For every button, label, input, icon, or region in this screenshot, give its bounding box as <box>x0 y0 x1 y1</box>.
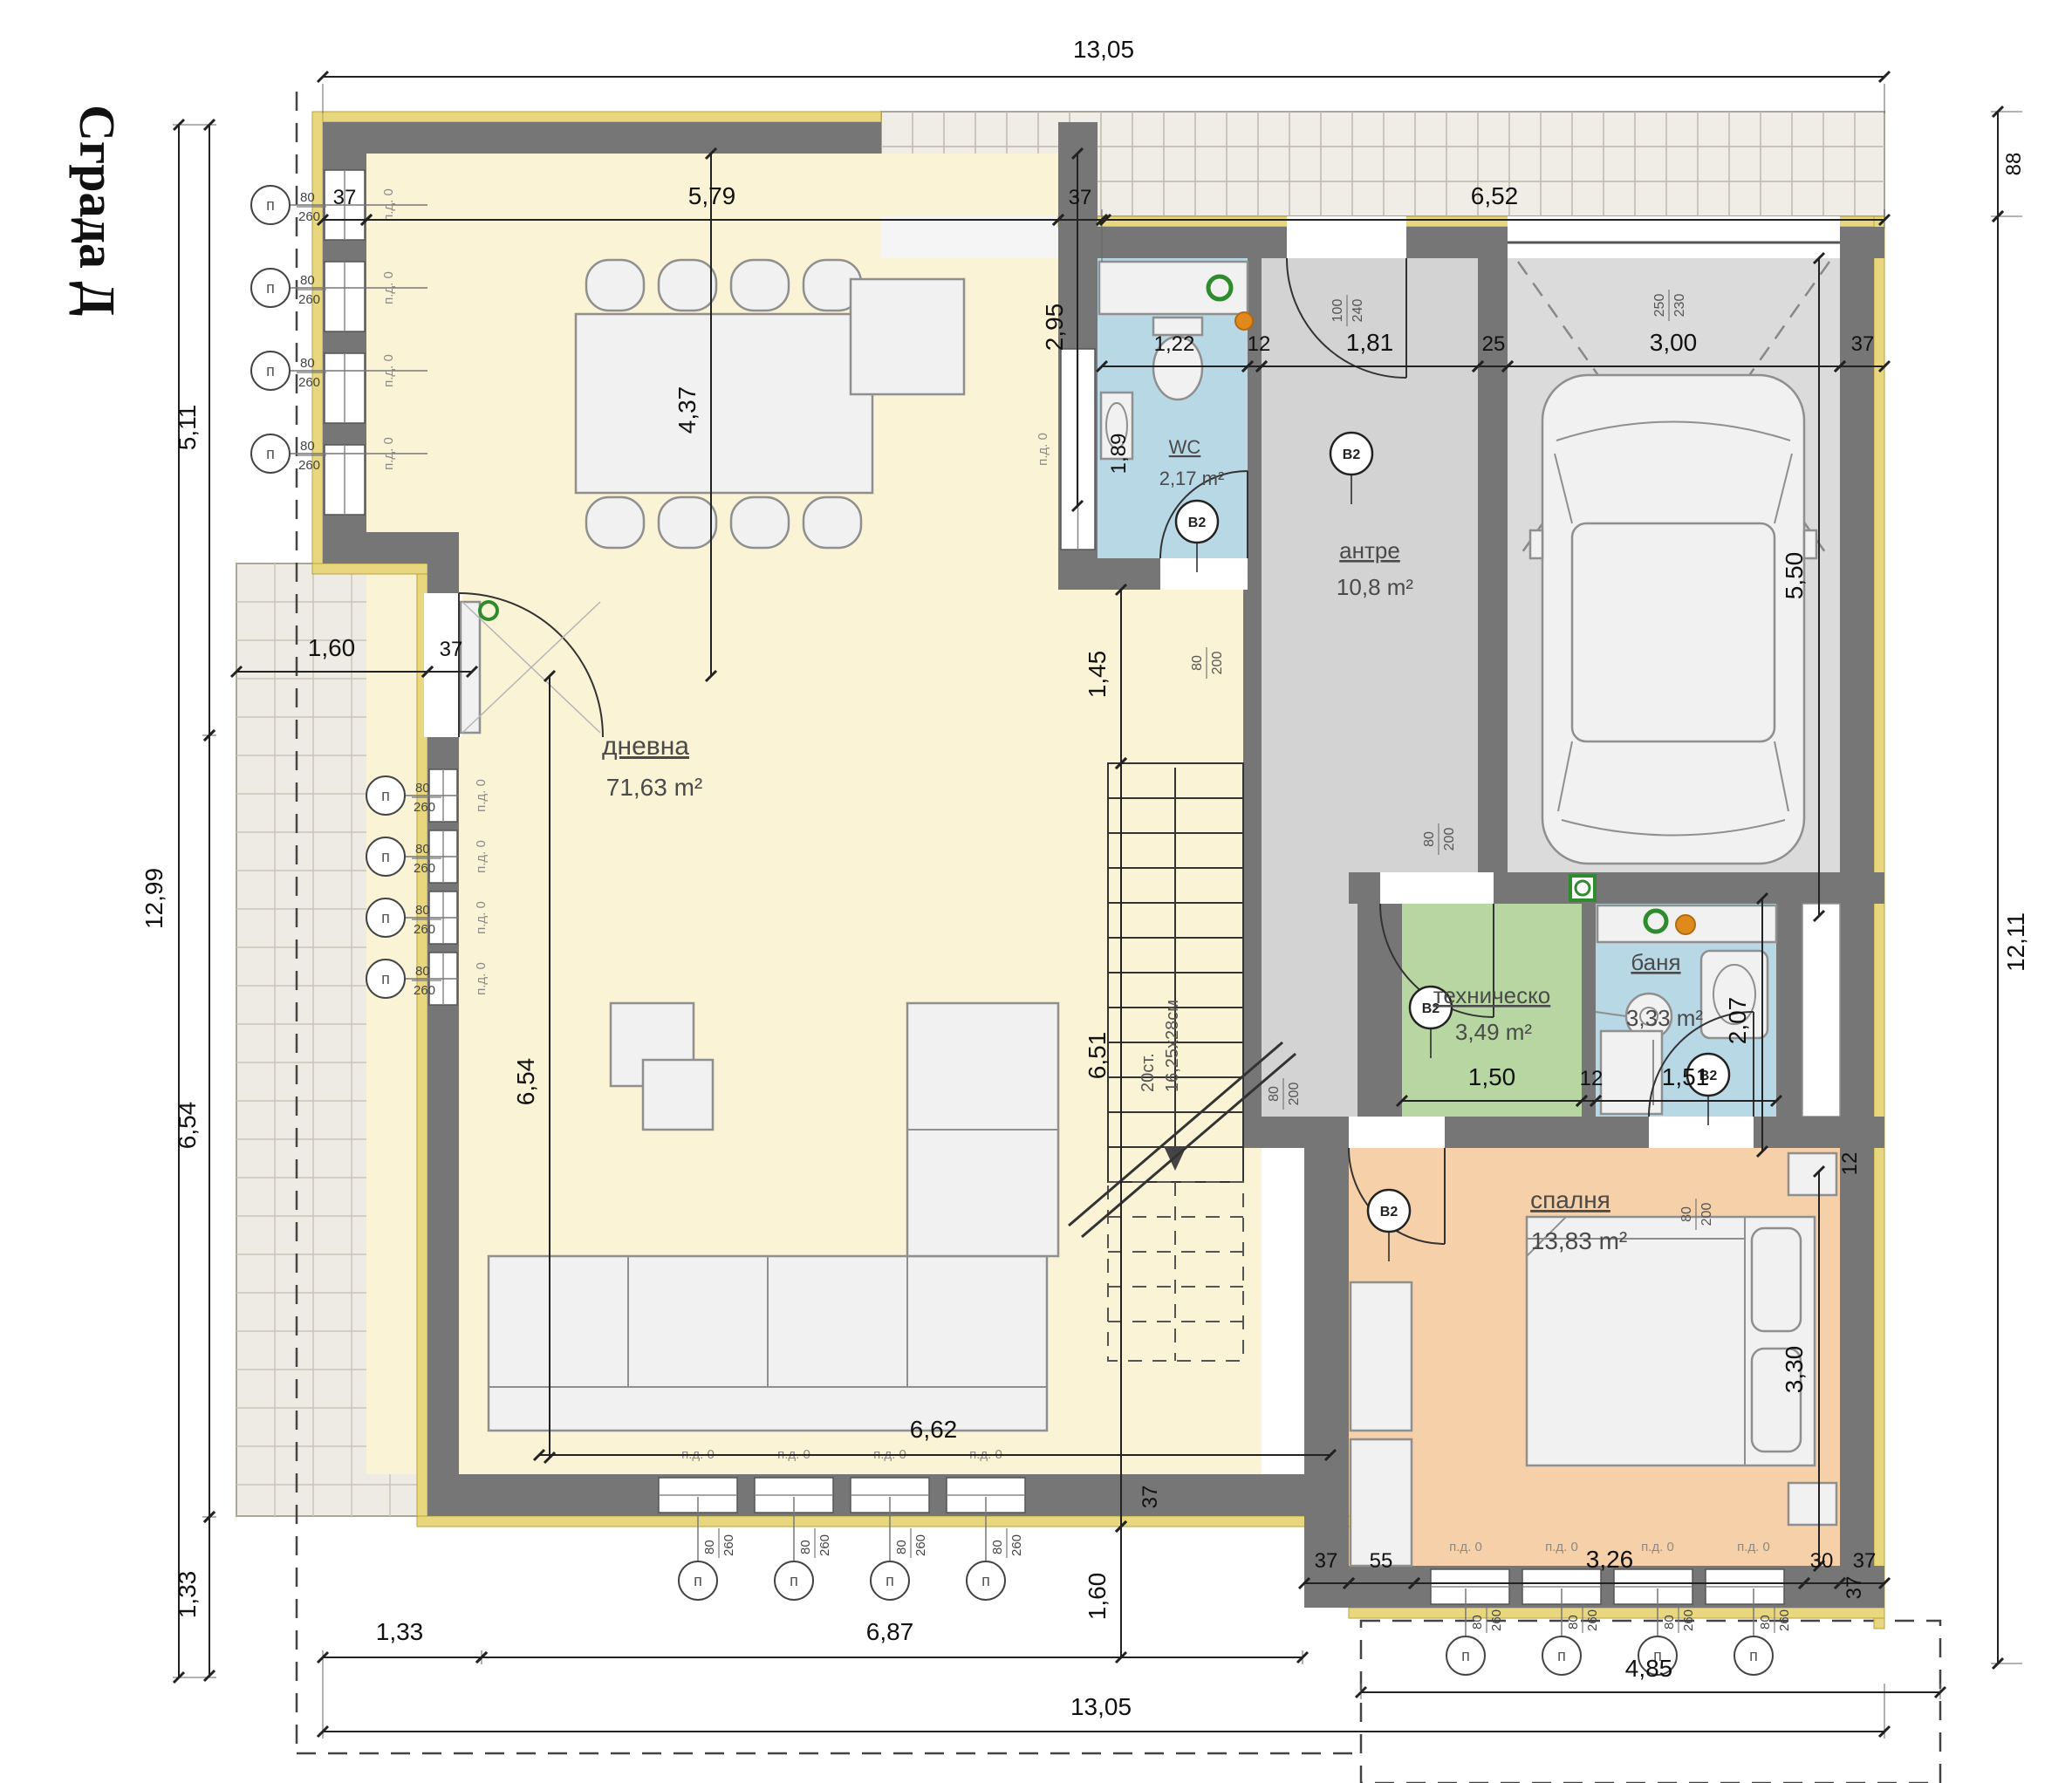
svg-text:240: 240 <box>1351 299 1365 323</box>
dim-label: 1,22 <box>1154 332 1195 356</box>
page-title: Сграда Д <box>69 105 126 316</box>
svg-text:200: 200 <box>1699 1203 1714 1226</box>
dim-label: 3,26 <box>1586 1546 1634 1573</box>
pillow <box>1752 1228 1801 1331</box>
svg-text:п: п <box>1557 1647 1566 1664</box>
svg-text:п: п <box>381 909 390 926</box>
svg-text:260: 260 <box>414 800 435 815</box>
svg-text:260: 260 <box>414 983 435 998</box>
svg-text:80: 80 <box>702 1540 717 1554</box>
dim-label: 6,54 <box>174 1102 201 1150</box>
svg-text:80: 80 <box>415 964 430 979</box>
nightstand <box>1788 1153 1836 1195</box>
svg-text:80: 80 <box>300 439 315 454</box>
room-name-tech: техническо <box>1433 982 1551 1008</box>
dim-label: 6,87 <box>866 1618 914 1645</box>
svg-text:80: 80 <box>1662 1615 1677 1629</box>
window-sill-label: п.д. 0 <box>1641 1540 1674 1554</box>
dim-label: 13,05 <box>1073 36 1134 63</box>
svg-text:п: п <box>381 970 390 987</box>
dim-label: 2,95 <box>1041 304 1068 352</box>
window-sill-label: п.д. 0 <box>474 962 489 995</box>
dim-label: 12,99 <box>140 868 168 929</box>
room-area-bath: 3,33 m² <box>1626 1005 1703 1031</box>
svg-text:80: 80 <box>1758 1615 1773 1629</box>
window-sill-label: п.д. 0 <box>381 354 396 387</box>
dim-label: 12 <box>1838 1152 1862 1176</box>
nightstand <box>1788 1483 1836 1525</box>
svg-text:260: 260 <box>1009 1534 1024 1556</box>
dim-label: 5,11 <box>174 405 201 450</box>
dim-label: 37 <box>1851 332 1875 356</box>
svg-text:В2: В2 <box>1380 1205 1398 1219</box>
room-area-wc: 2,17 m² <box>1159 468 1225 489</box>
floor-plan-page: п80260п80260п80260п80260п80260п80260п802… <box>0 0 2072 1783</box>
svg-text:80: 80 <box>415 903 430 918</box>
svg-text:80: 80 <box>415 781 430 796</box>
dining-chair <box>659 497 716 548</box>
dim-label: 1,50 <box>1468 1063 1516 1090</box>
room-name-bath: баня <box>1631 949 1680 975</box>
svg-text:80: 80 <box>300 273 315 288</box>
dim-label: 3,00 <box>1650 329 1698 356</box>
dim-label: 37 <box>1853 1549 1877 1573</box>
dim-label: 12 <box>1580 1067 1604 1090</box>
dim-label: 6,51 <box>1084 1032 1111 1080</box>
svg-text:260: 260 <box>298 458 320 473</box>
coffee-table <box>643 1060 713 1130</box>
window-sill-label: п.д. 0 <box>1737 1540 1770 1554</box>
svg-text:п: п <box>981 1572 990 1589</box>
dim-label: 1,60 <box>1084 1573 1111 1621</box>
side-table <box>851 279 964 394</box>
window-sill-label: п.д. 0 <box>381 271 396 304</box>
dim-label: 37 <box>1843 1576 1866 1600</box>
dim-label: 13,05 <box>1070 1693 1132 1720</box>
dim-label: 37 <box>1139 1486 1162 1509</box>
svg-text:п: п <box>266 279 275 297</box>
window-sill-label: п.д. 0 <box>381 437 396 470</box>
svg-text:80: 80 <box>1470 1615 1485 1629</box>
svg-text:80: 80 <box>1190 655 1205 671</box>
window-sill-label: п.д. 0 <box>1545 1540 1578 1554</box>
dim-label: 3,30 <box>1781 1346 1808 1394</box>
svg-text:260: 260 <box>298 292 320 307</box>
room-name-wc: WC <box>1169 436 1201 458</box>
room-area-tech: 3,49 m² <box>1455 1019 1532 1045</box>
dim-label: 5,79 <box>688 182 736 209</box>
orange-marker <box>1676 915 1695 934</box>
dim-label: 1,89 <box>1107 434 1131 475</box>
dim-label: 1,33 <box>174 1571 201 1619</box>
dim-label: 30 <box>1810 1549 1834 1573</box>
svg-text:п: п <box>381 787 390 804</box>
svg-text:п: п <box>381 848 390 865</box>
svg-text:п: п <box>694 1572 702 1589</box>
svg-text:260: 260 <box>414 861 435 876</box>
dim-label: 6,54 <box>512 1058 539 1106</box>
svg-text:В2: В2 <box>1188 516 1207 530</box>
svg-text:260: 260 <box>1489 1609 1504 1631</box>
dining-chair <box>586 260 644 311</box>
dining-chair <box>659 260 716 311</box>
room-area-bedroom: 13,83 m² <box>1531 1227 1628 1254</box>
svg-text:80: 80 <box>990 1540 1005 1554</box>
window-sill-label: п.д. 0 <box>474 779 489 812</box>
dining-chair <box>731 497 789 548</box>
svg-text:п: п <box>266 445 275 462</box>
dim-label: 6,62 <box>910 1416 958 1443</box>
corridor-floor <box>1262 872 1357 1148</box>
svg-text:230: 230 <box>1672 294 1687 318</box>
dim-label: 5,50 <box>1781 552 1808 600</box>
dim-label: 12,11 <box>2002 912 2029 972</box>
svg-text:80: 80 <box>415 842 430 857</box>
room-name-bedroom: спалня <box>1530 1186 1610 1213</box>
dim-label: 1,51 <box>1662 1063 1710 1090</box>
dim-label: 12 <box>1248 332 1271 356</box>
svg-text:200: 200 <box>1287 1083 1302 1106</box>
car-cabin <box>1572 523 1775 741</box>
svg-text:80: 80 <box>1422 831 1437 847</box>
window-sill-label: п.д. 0 <box>1449 1540 1482 1554</box>
svg-text:260: 260 <box>1681 1609 1696 1631</box>
dining-chair <box>731 260 789 311</box>
svg-text:100: 100 <box>1330 299 1345 323</box>
dim-label: 88 <box>2002 153 2026 176</box>
window-sill-label: п.д. 0 <box>381 188 396 222</box>
dim-label: 4,85 <box>1625 1655 1673 1682</box>
svg-text:260: 260 <box>817 1534 832 1556</box>
dim-label: 55 <box>1370 1549 1393 1573</box>
svg-text:В2: В2 <box>1343 447 1361 462</box>
svg-text:260: 260 <box>298 375 320 390</box>
svg-text:п: п <box>790 1572 798 1589</box>
svg-text:п: п <box>1749 1647 1758 1664</box>
svg-text:п: п <box>266 362 275 379</box>
svg-text:260: 260 <box>1585 1609 1600 1631</box>
svg-text:200: 200 <box>1210 652 1225 675</box>
car-mirror <box>1530 530 1542 558</box>
svg-text:80: 80 <box>1566 1615 1581 1629</box>
floor-plan-drawing: п80260п80260п80260п80260п80260п80260п802… <box>0 0 2072 1783</box>
svg-text:п: п <box>1461 1647 1470 1664</box>
dim-label: 1,45 <box>1084 651 1111 699</box>
dim-label: 1,33 <box>376 1618 424 1645</box>
dim-label: 1,60 <box>308 634 356 661</box>
dim-label: 6,52 <box>1471 182 1519 209</box>
svg-text:80: 80 <box>300 356 315 371</box>
svg-text:80: 80 <box>1679 1206 1694 1222</box>
wardrobe <box>1351 1282 1412 1431</box>
room-area-hall: 10,8 m² <box>1337 574 1413 600</box>
wardrobe <box>1351 1439 1412 1566</box>
room-area-living: 71,63 m² <box>606 774 703 801</box>
orange-marker <box>1235 312 1253 330</box>
svg-text:260: 260 <box>298 209 320 224</box>
dining-table <box>576 314 872 493</box>
dim-label: 1,81 <box>1346 329 1394 356</box>
svg-text:80: 80 <box>300 190 315 205</box>
dim-label: 25 <box>1482 332 1506 356</box>
wc-cabinet <box>1099 262 1248 314</box>
svg-text:250: 250 <box>1652 294 1667 318</box>
dim-label: 37 <box>440 638 463 661</box>
svg-text:80: 80 <box>798 1540 813 1554</box>
svg-text:260: 260 <box>1777 1609 1792 1631</box>
svg-text:260: 260 <box>414 922 435 937</box>
dim-label: 2,07 <box>1724 997 1751 1045</box>
svg-text:п: п <box>886 1572 894 1589</box>
tv-unit <box>461 602 480 733</box>
svg-text:80: 80 <box>1267 1086 1282 1102</box>
svg-text:п: п <box>266 196 275 214</box>
porch-slab <box>881 216 1058 258</box>
svg-text:260: 260 <box>913 1534 928 1556</box>
window-sill-label: п.д. 0 <box>474 901 489 934</box>
svg-text:200: 200 <box>1442 828 1457 851</box>
room-name-hall: антре <box>1339 537 1400 564</box>
window-sill-label: п.д. 0 <box>474 840 489 873</box>
dim-label: 37 <box>333 186 357 209</box>
dim-label: 37 <box>1069 186 1092 209</box>
svg-text:260: 260 <box>721 1534 736 1556</box>
dim-label: 4,37 <box>674 386 701 434</box>
svg-text:16,25х28см: 16,25х28см <box>1163 1000 1182 1092</box>
dim-label: 37 <box>1315 1549 1338 1573</box>
dining-chair <box>803 497 861 548</box>
green-marker <box>1570 876 1595 900</box>
svg-text:20ст.: 20ст. <box>1139 1053 1158 1092</box>
room-name-living: дневна <box>602 732 689 761</box>
dining-chair <box>586 497 644 548</box>
window-sill-label: п.д. 0 <box>1036 433 1050 466</box>
svg-text:80: 80 <box>894 1540 909 1554</box>
